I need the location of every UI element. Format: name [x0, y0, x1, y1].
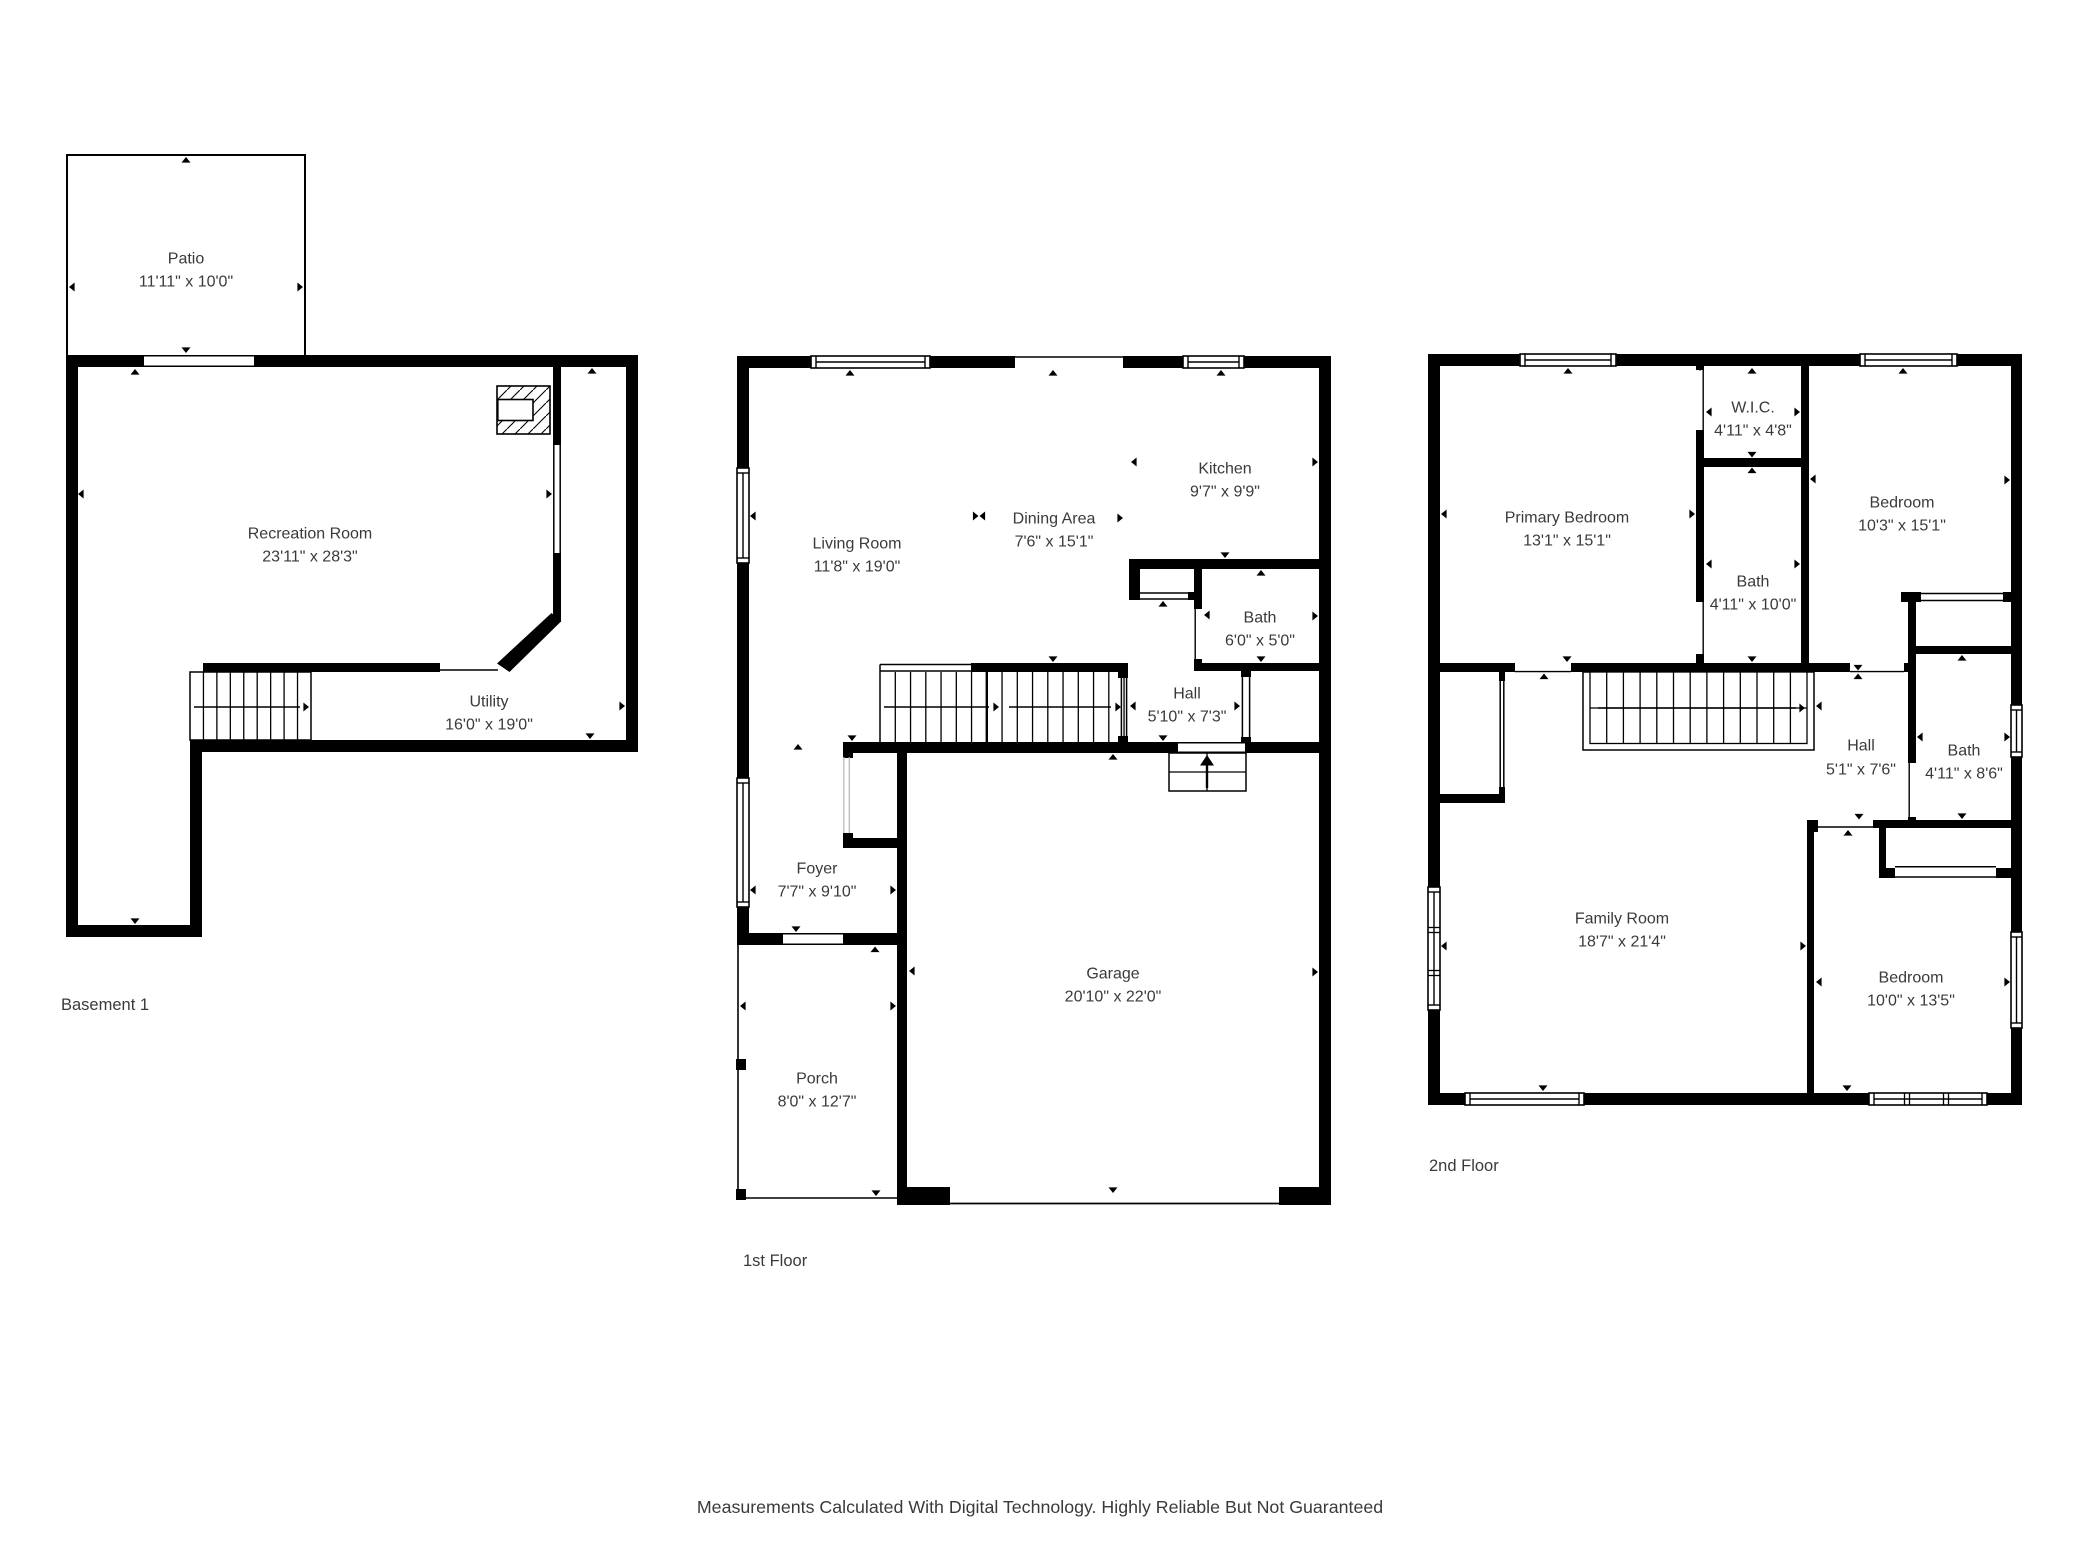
- svg-text:10'3" x 15'1": 10'3" x 15'1": [1858, 518, 1946, 535]
- svg-text:Family Room: Family Room: [1575, 911, 1669, 928]
- svg-text:W.I.C.: W.I.C.: [1731, 400, 1775, 417]
- svg-text:2nd Floor: 2nd Floor: [1429, 1157, 1499, 1175]
- svg-text:Patio: Patio: [168, 251, 205, 268]
- svg-text:Hall: Hall: [1173, 686, 1201, 703]
- svg-text:16'0" x 19'0": 16'0" x 19'0": [445, 717, 533, 734]
- svg-text:4'11" x 8'6": 4'11" x 8'6": [1925, 766, 2003, 783]
- svg-text:1st Floor: 1st Floor: [743, 1252, 808, 1270]
- svg-text:Utility: Utility: [469, 694, 508, 711]
- svg-text:7'6" x 15'1": 7'6" x 15'1": [1015, 534, 1094, 551]
- svg-text:18'7" x 21'4": 18'7" x 21'4": [1578, 934, 1666, 951]
- svg-text:Garage: Garage: [1086, 966, 1139, 983]
- svg-text:Bath: Bath: [1948, 743, 1981, 760]
- svg-text:Living Room: Living Room: [813, 536, 902, 553]
- svg-text:5'10" x 7'3": 5'10" x 7'3": [1148, 709, 1227, 726]
- svg-text:Recreation Room: Recreation Room: [248, 526, 373, 543]
- svg-text:Porch: Porch: [796, 1071, 838, 1088]
- svg-text:Bath: Bath: [1737, 574, 1770, 591]
- svg-text:13'1" x 15'1": 13'1" x 15'1": [1523, 533, 1611, 550]
- svg-text:Measurements Calculated With D: Measurements Calculated With Digital Tec…: [697, 1497, 1383, 1517]
- svg-text:20'10" x 22'0": 20'10" x 22'0": [1065, 989, 1162, 1006]
- svg-text:8'0" x 12'7": 8'0" x 12'7": [778, 1094, 857, 1111]
- svg-text:23'11" x 28'3": 23'11" x 28'3": [262, 549, 357, 566]
- svg-text:Primary Bedroom: Primary Bedroom: [1505, 510, 1629, 527]
- svg-text:11'11" x 10'0": 11'11" x 10'0": [139, 274, 233, 291]
- svg-text:Kitchen: Kitchen: [1198, 461, 1251, 478]
- svg-text:Dining Area: Dining Area: [1013, 511, 1096, 528]
- svg-text:Bath: Bath: [1244, 610, 1277, 627]
- svg-text:7'7" x 9'10": 7'7" x 9'10": [778, 884, 857, 901]
- svg-text:4'11" x 10'0": 4'11" x 10'0": [1710, 597, 1797, 614]
- svg-text:Hall: Hall: [1847, 738, 1875, 755]
- svg-text:11'8" x 19'0": 11'8" x 19'0": [814, 559, 901, 576]
- svg-text:4'11" x 4'8": 4'11" x 4'8": [1714, 423, 1792, 440]
- svg-text:Foyer: Foyer: [797, 861, 839, 878]
- svg-text:5'1" x 7'6": 5'1" x 7'6": [1826, 762, 1896, 779]
- svg-text:6'0" x 5'0": 6'0" x 5'0": [1225, 633, 1295, 650]
- svg-text:9'7" x 9'9": 9'7" x 9'9": [1190, 484, 1260, 501]
- svg-text:Basement 1: Basement 1: [61, 996, 149, 1014]
- svg-text:Bedroom: Bedroom: [1870, 495, 1935, 512]
- svg-text:Bedroom: Bedroom: [1879, 970, 1944, 987]
- svg-text:10'0" x 13'5": 10'0" x 13'5": [1867, 993, 1955, 1010]
